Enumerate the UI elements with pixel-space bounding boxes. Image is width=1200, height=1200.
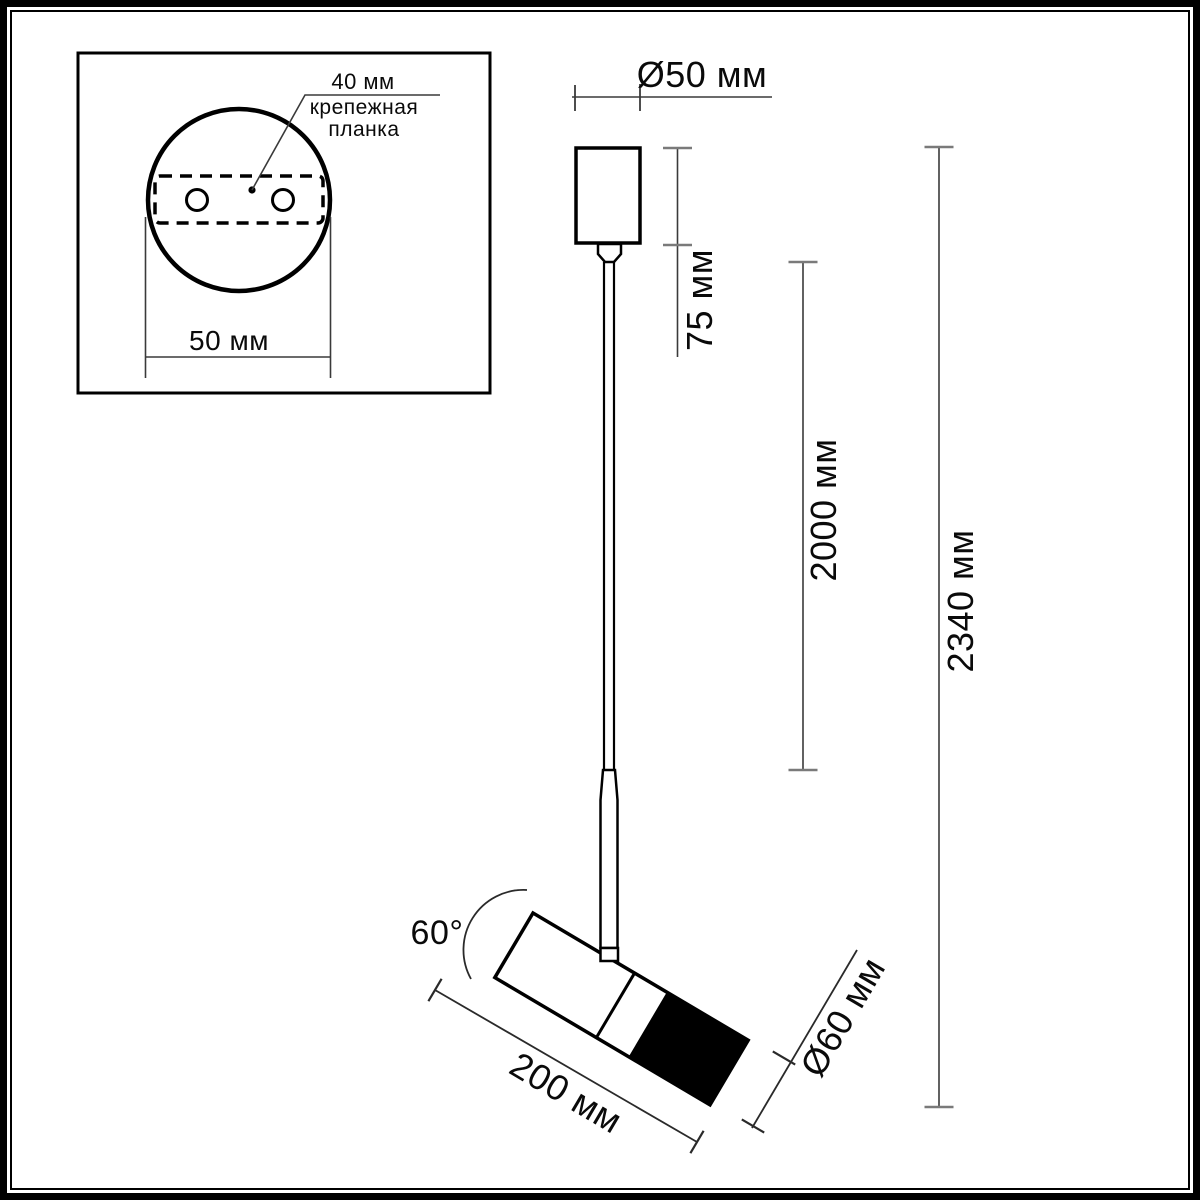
outer-border [0,0,1200,1200]
fixture-dimension-sheet: 40 мм крепежная планка 50 мм Ø50 мм 75 м… [0,0,1200,1200]
